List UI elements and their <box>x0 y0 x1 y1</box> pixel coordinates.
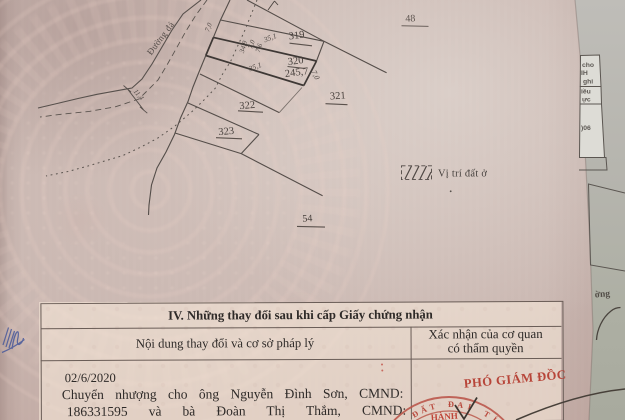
svg-text:Ấ: Ấ <box>419 404 428 416</box>
svg-text:321: 321 <box>330 90 346 102</box>
svg-text:323: 323 <box>218 126 235 138</box>
svg-text:Đ: Đ <box>448 400 454 409</box>
svg-text:7,0: 7,0 <box>203 21 214 32</box>
svg-text:HÀNH: HÀNH <box>430 411 458 420</box>
svg-text:IH: IH <box>581 70 588 77</box>
svg-text:cho: cho <box>582 62 594 69</box>
svg-text:Đ: Đ <box>410 409 420 420</box>
svg-text:322: 322 <box>239 100 256 112</box>
svg-text:ực: ực <box>582 97 591 104</box>
svg-text:7,6: 7,6 <box>254 42 264 53</box>
svg-text:ờng: ờng <box>594 289 610 300</box>
svg-text:Đường đá: Đường đá <box>145 20 177 57</box>
svg-text:245,7: 245,7 <box>284 66 309 80</box>
svg-text:11,4: 11,4 <box>132 88 146 103</box>
svg-text:ghi: ghi <box>583 79 593 86</box>
svg-text:)06: )06 <box>581 125 591 132</box>
svg-text:54: 54 <box>302 213 313 225</box>
svg-text:T: T <box>429 402 437 412</box>
svg-text:T: T <box>482 409 492 420</box>
svg-text:iều: iều <box>581 87 591 96</box>
svg-text:48: 48 <box>405 13 416 25</box>
svg-text:Vị trí đất ở: Vị trí đất ở <box>438 168 487 179</box>
svg-text:35,1: 35,1 <box>261 31 277 44</box>
svg-text:319: 319 <box>288 30 305 43</box>
